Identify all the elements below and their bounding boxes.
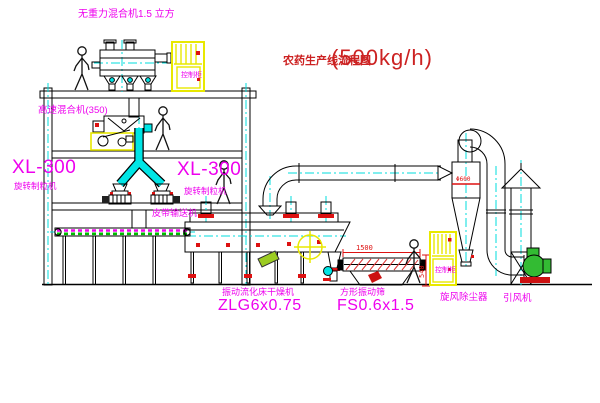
fan-drawing <box>520 248 551 283</box>
cad-flow-diagram: 农药生产线流程图 (500kg/h) 无重力混合机1.5 立方 高速混合机(35… <box>0 0 600 403</box>
dryer-legs <box>188 252 306 283</box>
indicator-dot <box>196 51 200 55</box>
label-granulator-right-name: 旋转制粒机 <box>184 187 227 196</box>
label-granulator-left-model: XL-300 <box>12 158 76 177</box>
fluid-bed-dryer-drawing <box>185 202 350 283</box>
label-dryer-model: ZLG6x0.75 <box>218 298 302 314</box>
label-granulator-right-model: XL-300 <box>177 160 241 179</box>
label-fan: 引风机 <box>503 294 532 304</box>
feed-duct <box>259 163 452 215</box>
floor-slab-top <box>40 91 256 98</box>
label-cabinet-upper: 控制柜 <box>181 72 202 79</box>
control-cabinet-lower <box>430 232 456 285</box>
mixer-hoppers <box>104 76 156 90</box>
dryer-flange-dots <box>196 240 321 247</box>
crosshair-symbol <box>294 231 326 263</box>
label-high-speed-mixer: 高速混合机(350) <box>38 106 108 116</box>
exhaust-duct <box>470 129 524 277</box>
indicator-dot <box>448 238 452 242</box>
mixer-drop-pipe <box>129 98 139 117</box>
worker-figure <box>155 107 170 150</box>
fan-base <box>520 277 550 283</box>
label-screen-model: FS0.6x1.5 <box>337 298 414 314</box>
worker-figure <box>74 47 89 90</box>
label-granulator-left-name: 旋转制粒机 <box>14 182 57 191</box>
dimension-screen-height: 540 <box>419 265 426 278</box>
floor-slab-mid <box>52 151 242 158</box>
label-cabinet-lower: 控制柜 <box>435 267 456 274</box>
discharge-duct <box>132 210 146 229</box>
dimension-screen-length: 1500 <box>356 245 373 252</box>
floor-slab-low <box>52 203 242 210</box>
control-cabinet-upper <box>172 42 204 91</box>
granulator-right-drawing <box>151 184 180 204</box>
granulator-left-drawing <box>102 184 131 204</box>
belt-conveyor-drawing <box>55 228 190 285</box>
label-no-gravity-mixer: 无重力混合机1.5 立方 <box>78 10 175 20</box>
dimension-cyclone-diameter: Φ600 <box>456 177 470 183</box>
green-unit <box>258 251 279 267</box>
label-cyclone: 旋风除尘器 <box>440 293 488 303</box>
label-belt-conveyor: 皮带输送机 <box>152 209 197 218</box>
label-screen-name: 方形振动筛 <box>340 288 385 297</box>
drawing-title-capacity: (500kg/h) <box>331 47 433 69</box>
label-dryer-name: 振动流化床干燥机 <box>222 288 294 297</box>
